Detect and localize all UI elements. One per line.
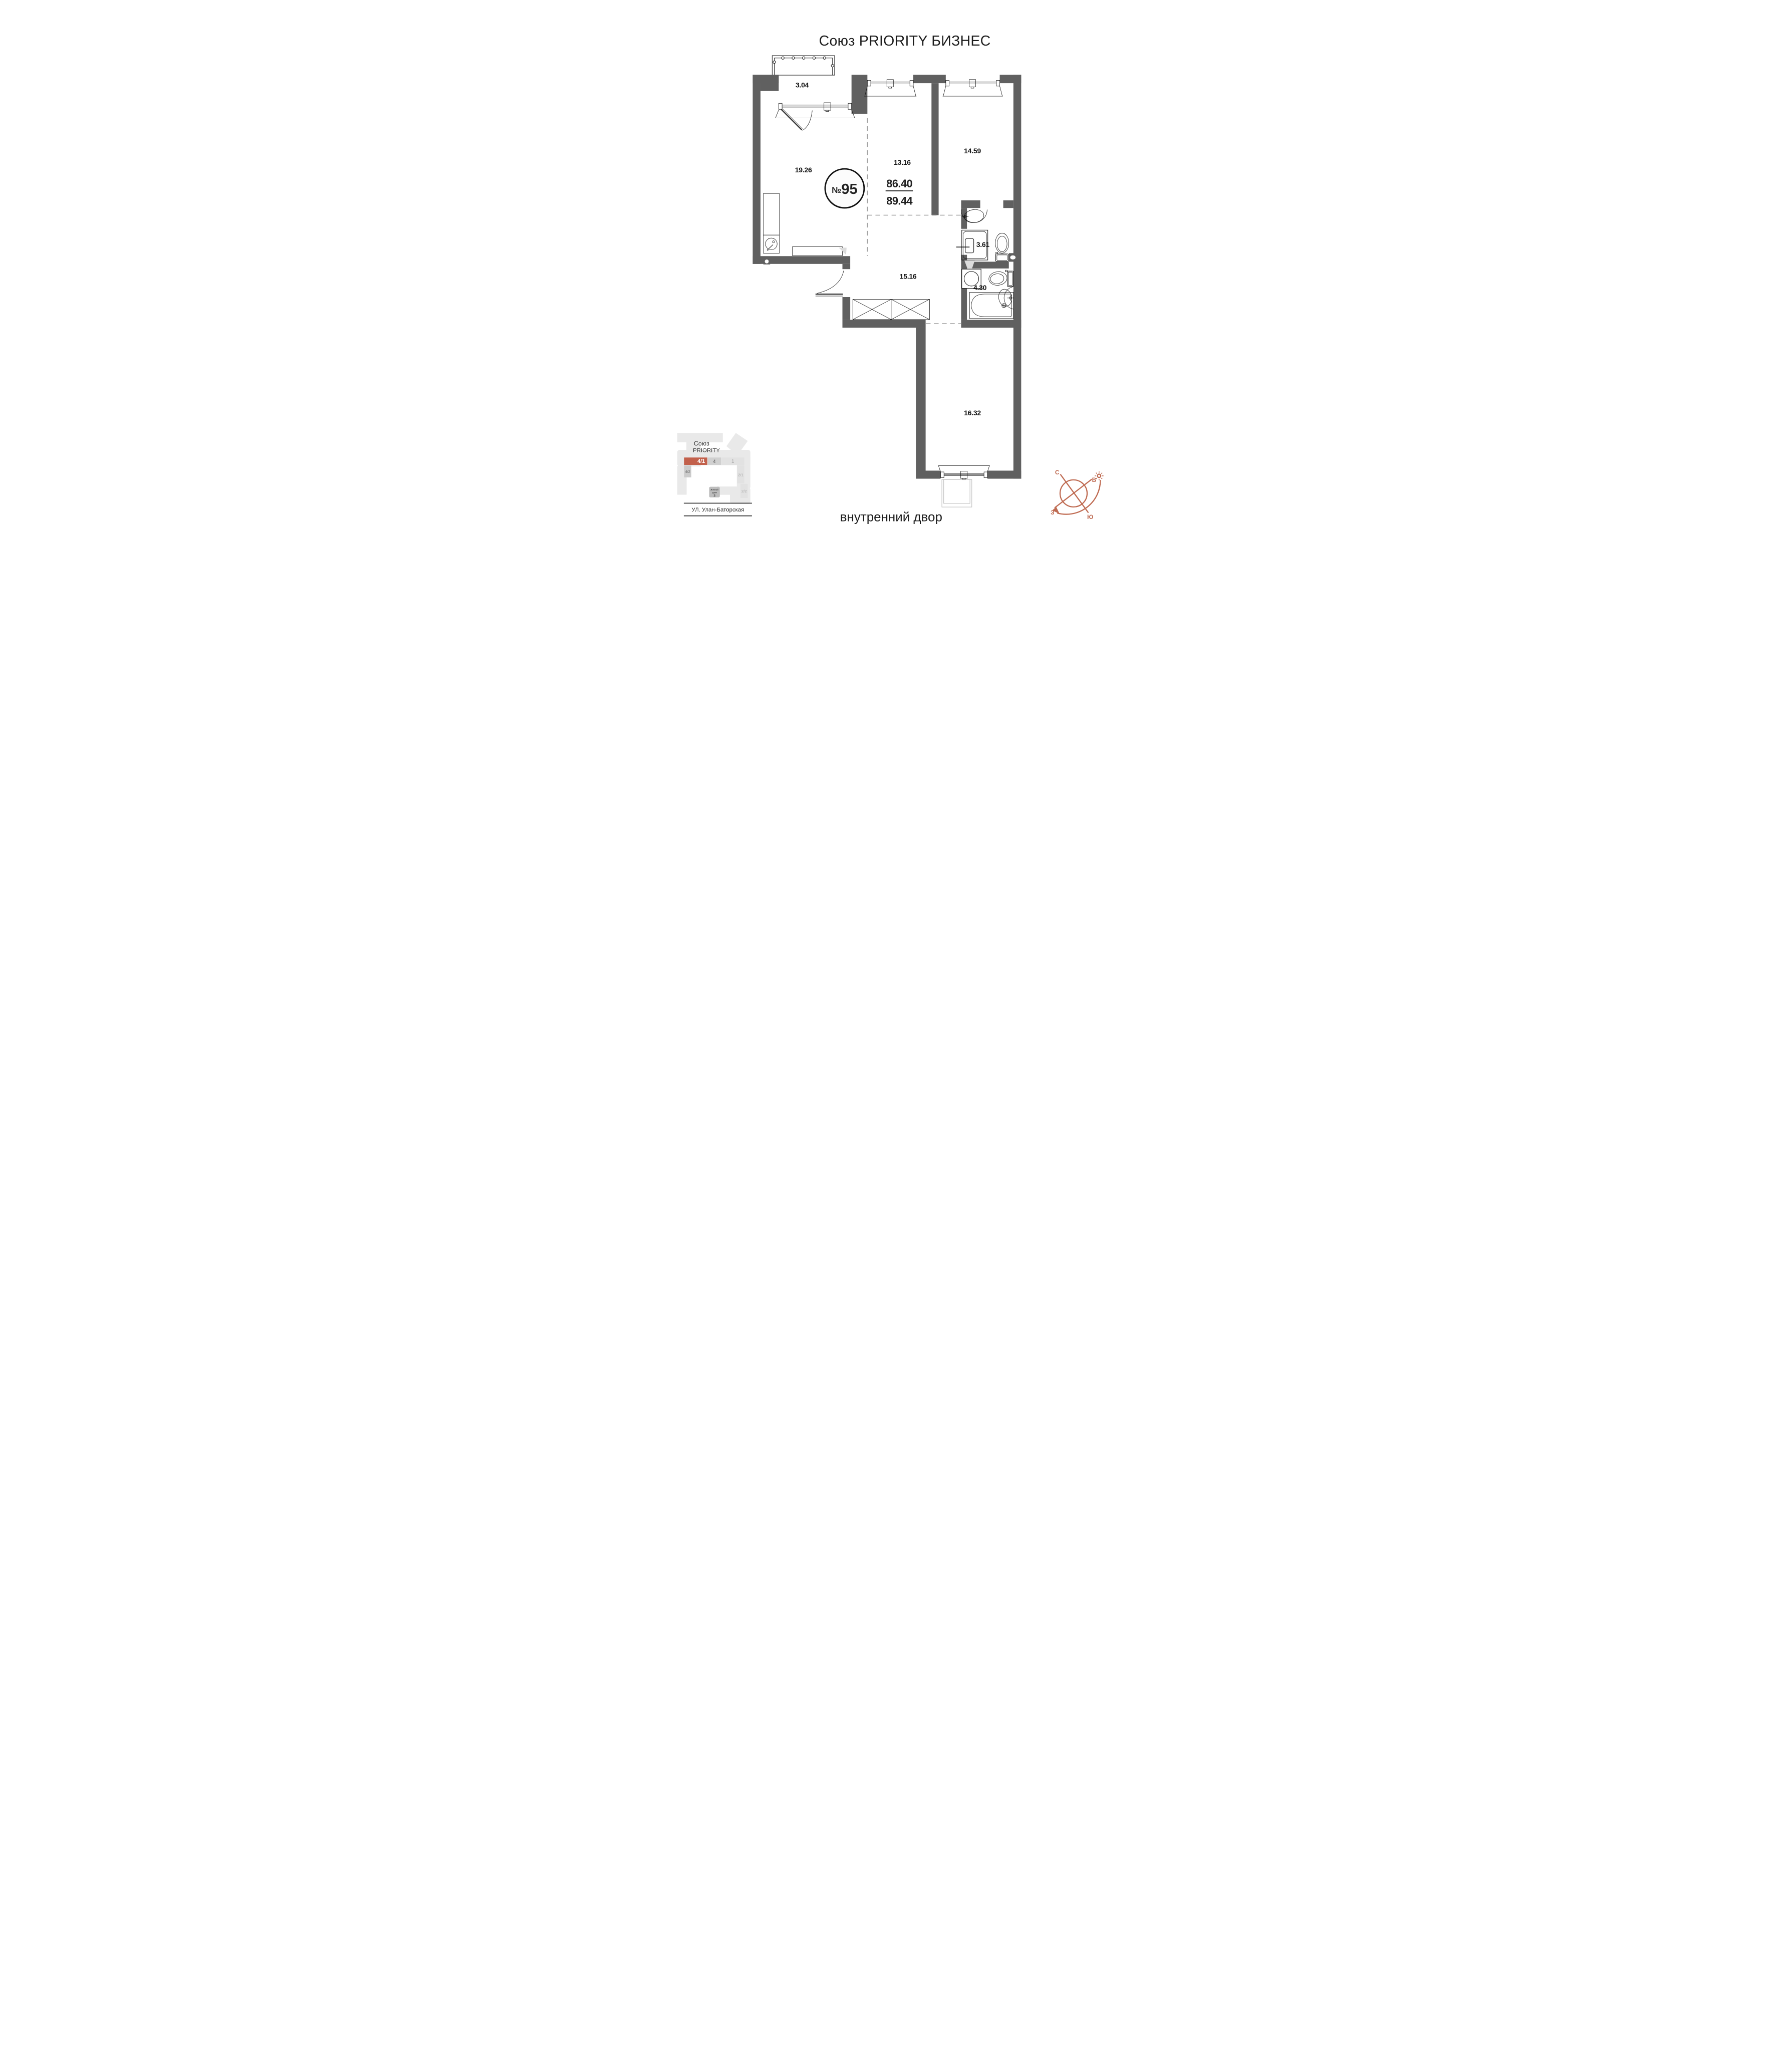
area-summary: 86.40 89.44 xyxy=(885,177,912,207)
compass: С В З Ю xyxy=(1051,469,1103,521)
page-title: Союз PRIORITY БИЗНЕС xyxy=(819,33,990,49)
window-bedroom-2 xyxy=(942,80,1002,96)
sun-icon xyxy=(1094,471,1103,480)
balcony-door-swing-icon xyxy=(781,109,812,130)
minimap-block-4[interactable]: 4 xyxy=(707,457,720,465)
minimap-block-4-1-label: 4/1 xyxy=(697,458,705,464)
minimap-block-4-2[interactable]: 4/2 xyxy=(684,465,691,477)
minimap-block-1-label: 1 xyxy=(731,459,734,464)
minimap-block-4-1[interactable]: 4/1 xyxy=(684,457,707,465)
room-label-balcony: 3.04 xyxy=(795,81,809,89)
minimap-house-number: 3 xyxy=(713,494,715,498)
street-label: УЛ. Улан-Баторская xyxy=(691,507,744,513)
area-boundary-dashed-lines xyxy=(867,118,961,324)
minimap-block-4-label: 4 xyxy=(713,459,715,464)
kitchen-vent-icon xyxy=(763,258,770,265)
balcony-door-window xyxy=(775,103,855,130)
area-total: 89.44 xyxy=(886,195,912,207)
compass-south-label: Ю xyxy=(1087,513,1093,521)
ensuite-vent-icon xyxy=(1008,253,1017,262)
balcony-rail-posts xyxy=(773,57,833,67)
entry-door-icon xyxy=(815,271,843,296)
balcony-structure xyxy=(772,56,835,75)
kitchen-sink-icon xyxy=(765,238,777,250)
room-label-bathroom-ensuite: 3.61 xyxy=(976,240,989,248)
room-label-bedroom-3: 16.32 xyxy=(964,409,981,417)
compass-east-label: В xyxy=(1092,476,1096,483)
minimap: Союз PRIORITY 4/1 4 1 4/2 2/1 2/2 Жилой xyxy=(677,433,751,516)
compass-north-label: С xyxy=(1055,469,1059,476)
ensuite-toilet-icon xyxy=(995,233,1008,262)
window-bedroom-3 xyxy=(938,466,989,480)
window-bedroom-1 xyxy=(864,80,916,96)
bathroom-toilet-icon xyxy=(988,270,1013,286)
wardrobe-icon xyxy=(853,299,929,319)
room-label-living-kitchen: 19.26 xyxy=(795,166,812,174)
courtyard-label: внутренний двор xyxy=(840,510,942,525)
apartment-number-badge: №95 xyxy=(825,169,864,208)
area-main: 86.40 xyxy=(886,177,912,190)
room-label-bathroom: 4.30 xyxy=(973,284,986,292)
number-sign: № xyxy=(832,185,841,195)
balcony-bottom-icon xyxy=(942,479,972,507)
minimap-street: УЛ. Улан-Баторская xyxy=(683,503,751,515)
room-label-bedroom-1: 13.16 xyxy=(894,158,911,166)
minimap-house-3[interactable]: Жилой дом 3 xyxy=(709,487,719,498)
minimap-block-2-1-label: 2/1 xyxy=(738,472,743,477)
floorplan-page: Союз PRIORITY БИЗНЕС xyxy=(658,0,1119,538)
minimap-block-4-2-label: 4/2 xyxy=(685,469,690,474)
minimap-project-line1: Союз xyxy=(693,440,709,447)
room-label-hallway: 15.16 xyxy=(899,273,916,281)
minimap-project-line2: PRIORITY xyxy=(693,448,720,454)
room-label-bedroom-2: 14.59 xyxy=(964,147,981,155)
minimap-block-1[interactable]: 1 xyxy=(721,457,744,465)
minimap-block-2-1[interactable]: 2/1 xyxy=(737,465,744,483)
apartment-number: 95 xyxy=(841,181,857,197)
minimap-block-2-2-label: 2/2 xyxy=(741,489,746,493)
floorplan-canvas: Союз PRIORITY БИЗНЕС xyxy=(658,0,1119,538)
minimap-block-2-2[interactable]: 2/2 xyxy=(740,484,747,498)
minimap-house-line2: дом xyxy=(712,491,717,494)
